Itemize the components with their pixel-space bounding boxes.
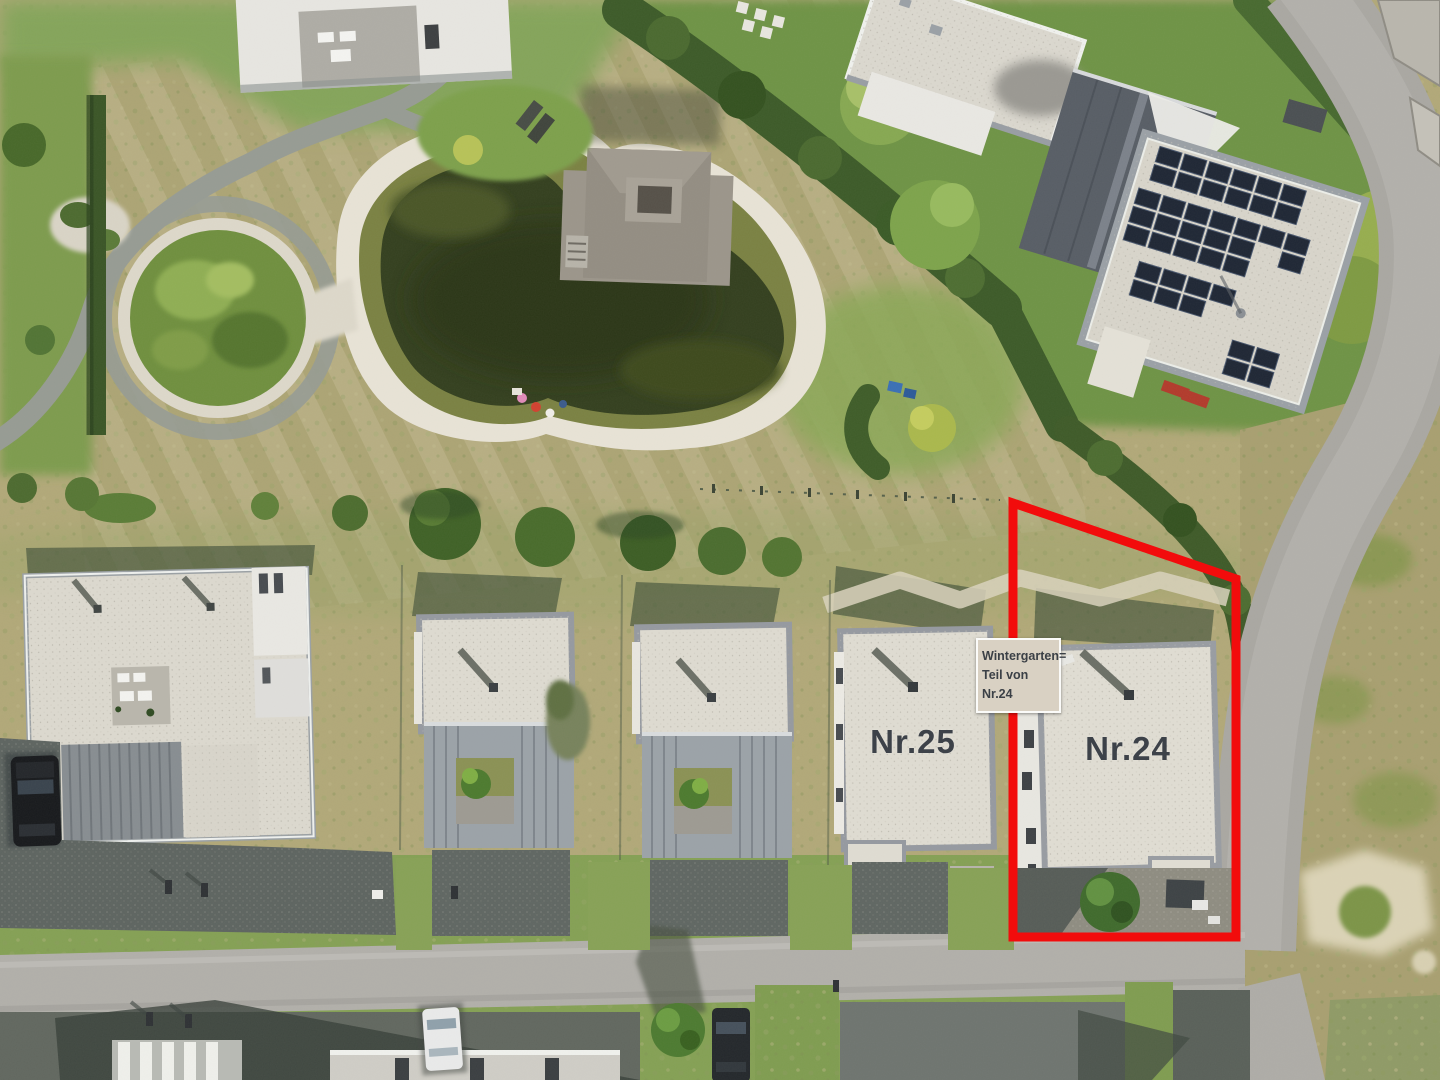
aerial-photo-canvas bbox=[0, 0, 1440, 1080]
label-wintergarten: Wintergarten= Teil von Nr.24 bbox=[976, 638, 1061, 713]
label-nr25: Nr.25 bbox=[853, 723, 973, 761]
aerial-photo: Nr.25 Nr.24 Wintergarten= Teil von Nr.24 bbox=[0, 0, 1440, 1080]
photo-grain bbox=[0, 0, 1440, 1080]
label-wintergarten-line1: Wintergarten= bbox=[982, 647, 1059, 666]
label-wintergarten-line2: Teil von Nr.24 bbox=[982, 666, 1059, 704]
label-nr24: Nr.24 bbox=[1068, 730, 1188, 768]
